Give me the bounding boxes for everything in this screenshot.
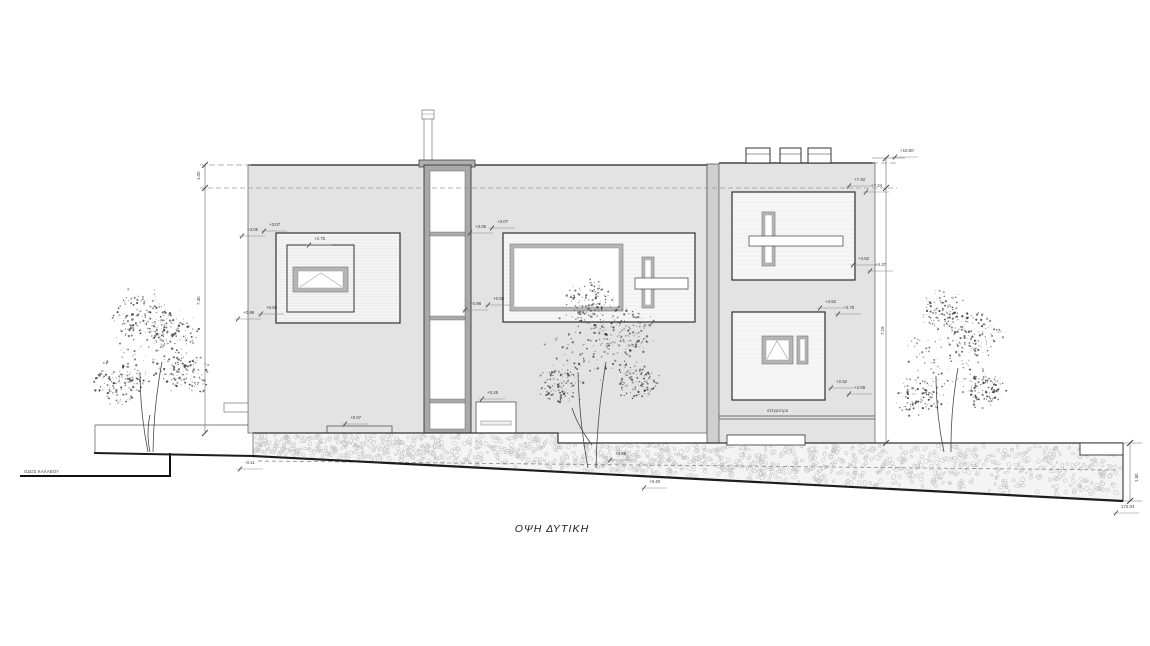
roof-vent-3 xyxy=(808,148,831,163)
base-box xyxy=(476,402,516,433)
level-annotation: +7.40 xyxy=(854,177,866,182)
level-annotation: +2.08 xyxy=(854,385,866,390)
level-annotation: +0.98 xyxy=(470,301,482,306)
level-annotation: +0.98 xyxy=(243,310,255,315)
base-box-slot xyxy=(481,421,511,425)
chimney xyxy=(422,110,434,162)
canopy-label: στέγαστρο xyxy=(767,408,789,413)
level-annotation: +2.75 xyxy=(314,236,326,241)
tree xyxy=(896,290,1007,452)
level-annotation: +7.24 xyxy=(871,183,883,188)
cross-horizontal xyxy=(635,278,688,289)
roof-vent-2 xyxy=(780,148,801,163)
level-annotation: +10.60 xyxy=(900,148,914,153)
level-annotation: 7.18 xyxy=(880,326,885,335)
mullion xyxy=(430,316,465,320)
elevation-sheet: στέγαστρο ΟΔΟΣ ΚΑΛΑΒΟΥ xyxy=(0,0,1150,646)
window-right-lower xyxy=(732,312,825,400)
level-annotation: +3.78 xyxy=(843,305,855,310)
cross-horizontal xyxy=(749,236,843,246)
window-right-upper xyxy=(732,192,855,280)
level-annotation: 172.04 xyxy=(1121,504,1135,509)
drawing-title: ΟΨΗ ΔΥΤΙΚΗ xyxy=(515,523,590,535)
window-middle xyxy=(503,233,695,322)
ground: ΟΔΟΣ ΚΑΛΑΒΟΥ xyxy=(20,425,1123,501)
level-annotation: +3.05 xyxy=(247,227,259,232)
level-annotation: 1.00 xyxy=(196,171,201,180)
level-annotation: +3.05 xyxy=(475,224,487,229)
level-annotation: +0.07 xyxy=(350,415,362,420)
level-annotation: +3.07 xyxy=(269,222,281,227)
mullion xyxy=(430,399,465,403)
level-annotation: +0.40 xyxy=(649,479,661,484)
level-annotation: +2.52 xyxy=(836,379,848,384)
roof-vent-1 xyxy=(746,148,770,163)
level-annotation: +4.52 xyxy=(858,256,870,261)
tree xyxy=(93,288,209,452)
level-annotation: +4.37 xyxy=(875,262,887,267)
base-plinth xyxy=(327,426,392,433)
level-annotation: +0.58 xyxy=(493,296,505,301)
street-label: ΟΔΟΣ ΚΑΛΑΒΟΥ xyxy=(24,469,59,474)
retaining-wall-top xyxy=(94,453,253,456)
level-annotation: +0.25 xyxy=(487,390,499,395)
level-annotation: +3.07 xyxy=(497,219,509,224)
wall-tab xyxy=(224,403,248,412)
stair-window xyxy=(424,165,471,433)
level-annotation: 1.50 xyxy=(1134,473,1139,482)
level-annotation: 7.40 xyxy=(196,296,201,305)
level-annotation: +0.58 xyxy=(266,305,278,310)
front-planter xyxy=(727,435,805,445)
level-annotation: +4.52 xyxy=(825,299,837,304)
level-annotation: -0.11 xyxy=(245,460,255,465)
wall-divider xyxy=(707,164,719,443)
elevation-drawing: στέγαστρο ΟΔΟΣ ΚΑΛΑΒΟΥ xyxy=(0,0,1150,646)
window-left xyxy=(276,233,400,323)
mullion xyxy=(430,232,465,236)
roof-vents xyxy=(746,148,831,163)
level-annotation: +0.65 xyxy=(615,451,627,456)
boundary-wall-right xyxy=(1080,443,1123,455)
